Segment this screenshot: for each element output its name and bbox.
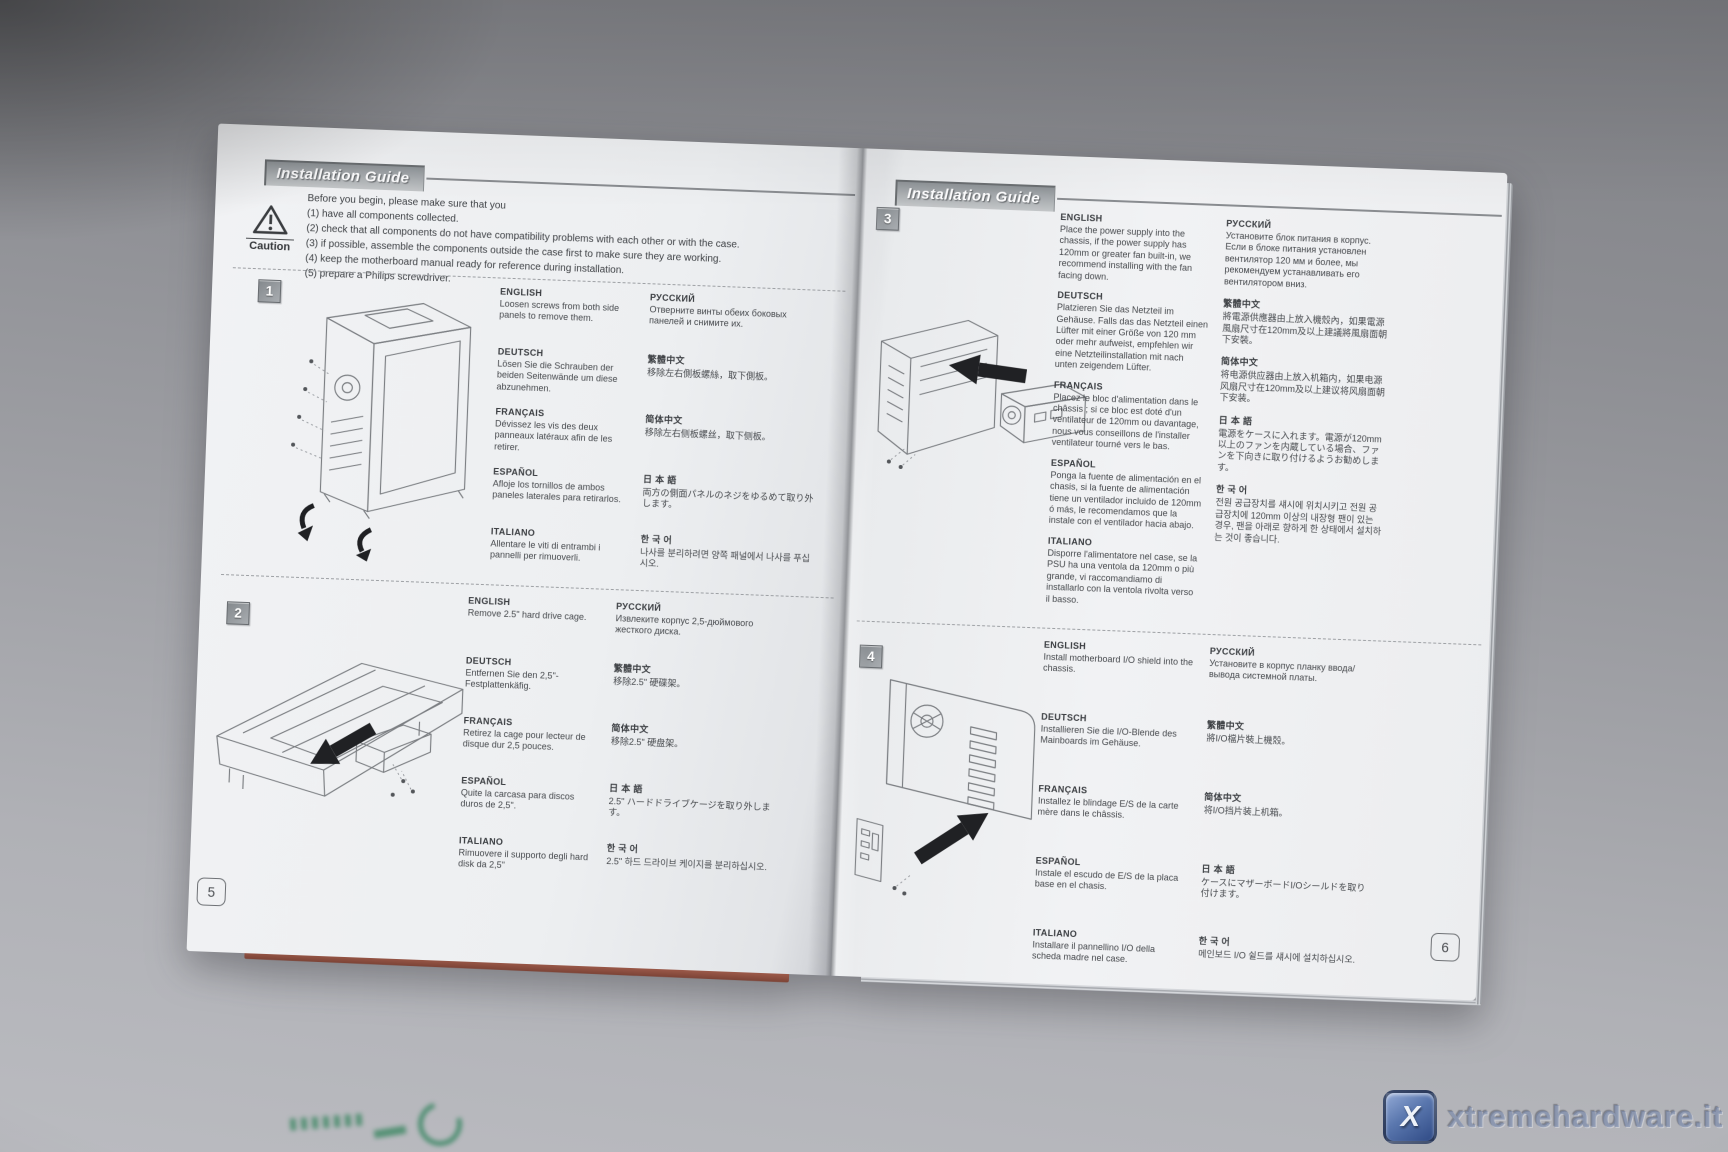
language-entry: РУССКИЙ Извлеките корпус 2,5-дюймового ж… (615, 601, 789, 655)
language-text: Afloje los tornillos de ambos paneles la… (492, 478, 631, 506)
step-3: 3 (859, 205, 1499, 643)
language-entry: DEUTSCH Platzieren Sie das Netzteil im G… (1055, 290, 1210, 376)
language-entry: ENGLISH Place the power supply into the … (1058, 212, 1213, 287)
language-entry: ESPAÑOL Instale el escudo de E/S de la p… (1034, 855, 1188, 919)
page-right: Installation Guide 3 (831, 148, 1507, 1000)
language-text: Loosen screws from both side panels to r… (499, 298, 638, 326)
language-text: 나사를 분리하려면 양쪽 패널에서 나사를 푸십시오. (640, 547, 813, 576)
step-3-languages-col1: ENGLISH Place the power supply into the … (1045, 212, 1212, 620)
step-1-languages-col1: ENGLISH Loosen screws from both side pan… (489, 286, 638, 591)
language-entry: FRANÇAIS Retirez la cage pour lecteur de… (462, 715, 602, 767)
language-text: Place the power supply into the chassis,… (1058, 224, 1212, 287)
language-text: Lösen Sie die Schrauben der beiden Seite… (496, 358, 635, 398)
language-entry: 繁體中文 移除左右側板螺絲，取下側板。 (646, 352, 820, 406)
language-text: 2.5" ハードドライブケージを取り外します。 (608, 796, 781, 825)
step-1-languages-col2: РУССКИЙ Отверните винты обеих боковых па… (639, 292, 822, 598)
header-rule (426, 178, 855, 196)
language-text: Установите в корпус планку ввода/вывода … (1209, 658, 1378, 687)
language-entry: РУССКИЙ Установите блок питания в корпус… (1224, 218, 1395, 294)
green-swirl-mark (410, 1094, 470, 1152)
step-3-badge: 3 (876, 207, 900, 231)
language-text: 将电源供应器由上放入机箱内，如果电源风扇尺寸在120mm及以上建议将风扇面朝下安… (1219, 370, 1388, 411)
language-text: Quite la carcasa para discos duros de 2,… (460, 787, 599, 815)
language-entry: 日 本 語 電源をケースに入れます。電源が120mm以上のファンを内蔵している場… (1217, 413, 1387, 480)
warning-triangle-icon (252, 203, 289, 236)
language-text: 將電源供應器由上放入機殼內，如果電源風扇尺寸在120mm及以上建議將風扇面朝下安… (1222, 311, 1391, 352)
page-title: Installation Guide (264, 159, 425, 191)
language-entry: FRANÇAIS Installez le blindage E/S de la… (1036, 784, 1190, 848)
language-text: Установите блок питания в корпус. Если в… (1224, 230, 1394, 294)
language-text: Retirez la cage pour lecteur de disque d… (462, 727, 601, 755)
language-entry: 简体中文 将电源供应器由上放入机箱内，如果电源风扇尺寸在120mm及以上建议将风… (1219, 355, 1389, 411)
step-1-case-drawing (266, 286, 508, 567)
language-text: Извлеките корпус 2,5-дюймового жесткого … (615, 613, 788, 642)
language-entry: 日 本 語 2.5" ハードドライブケージを取り外します。 (608, 781, 782, 835)
language-text: Entfernen Sie den 2,5"-Festplattenkäfig. (465, 667, 604, 695)
language-entry: ENGLISH Remove 2.5" hard drive cage. (467, 595, 607, 647)
language-text: Installare il pannellino I/O della sched… (1032, 939, 1185, 968)
language-entry: DEUTSCH Installieren Sie die I/O-Blende … (1039, 712, 1193, 776)
language-entry: 日 本 語 両方の側面パネルのネジをゆるめて取り外します。 (641, 472, 815, 526)
page-number-6: 6 (1430, 933, 1460, 962)
language-entry: ENGLISH Install motherboard I/O shield i… (1042, 640, 1196, 704)
language-text: Installez le blindage E/S de la carte mè… (1037, 796, 1190, 825)
language-entry: 日 本 語 ケースにマザーボードI/Oシールドを取り付けます。 (1200, 862, 1370, 926)
language-entry: 한 국 어 2.5" 하드 드라이브 케이지를 분리하십시오. (605, 841, 779, 895)
step-2-languages-col1: ENGLISH Remove 2.5" hard drive cage. DEU… (457, 595, 606, 900)
language-entry: РУССКИЙ Установите в корпус планку ввода… (1208, 646, 1378, 710)
step-1: 1 (231, 277, 847, 596)
step-4-languages-col2: РУССКИЙ Установите в корпус планку ввода… (1196, 646, 1378, 1012)
language-text: Allentare le viti di entrambi i pannelli… (490, 538, 629, 566)
language-text: Dévissez les vis des deux panneaux latér… (494, 418, 633, 458)
watermark: X xtremehardware.it (1383, 1090, 1723, 1144)
green-print-partial (282, 1096, 497, 1150)
language-text: Отверните винты обеих боковых панелей и … (649, 304, 822, 333)
step-4-languages-col1: ENGLISH Install motherboard I/O shield i… (1030, 640, 1196, 1006)
language-entry: ITALIANO Disporre l'alimentatore nel cas… (1046, 536, 1201, 611)
language-entry: ITALIANO Installare il pannellino I/O de… (1031, 927, 1185, 991)
step-4: 4 (845, 632, 1482, 992)
language-entry: FRANÇAIS Placez le bloc d'alimentation d… (1052, 379, 1207, 454)
language-entry: 繁體中文 將電源供應器由上放入機殼內，如果電源風扇尺寸在120mm及以上建議將風… (1222, 296, 1392, 352)
language-entry: ITALIANO Rimuovere il supporto degli har… (457, 835, 597, 887)
language-text: Placez le bloc d'alimentation dans le ch… (1052, 391, 1206, 454)
language-entry: 한 국 어 메인보드 I/O 쉴드를 섀시에 설치하십시오. (1197, 934, 1367, 998)
language-text: Rimuovere il supporto degli hard disk da… (458, 847, 597, 875)
green-text-smudge (290, 1113, 365, 1130)
step-2-case-drawing (204, 638, 470, 870)
language-entry: 繁體中文 移除2.5" 硬碟架。 (612, 661, 786, 715)
language-entry: 繁體中文 將I/O檔片裝上機殼。 (1205, 718, 1375, 782)
manual-booklet: Installation Guide Caution Before you be… (187, 124, 1508, 1001)
caution-label: Caution (243, 240, 295, 254)
language-entry: DEUTSCH Entfernen Sie den 2,5"-Festplatt… (464, 655, 604, 707)
page-left: Installation Guide Caution Before you be… (187, 124, 863, 976)
watermark-site-text: xtremehardware.it (1447, 1099, 1723, 1135)
language-entry: FRANÇAIS Dévissez les vis des deux panne… (494, 406, 634, 458)
language-text: Ponga la fuente de alimentación en el ch… (1049, 470, 1203, 533)
page-number-5: 5 (196, 877, 226, 906)
step-3-languages-col2: РУССКИЙ Установите блок питания в корпус… (1211, 218, 1394, 626)
language-entry: 한 국 어 전원 공급장치를 섀시에 위치시키고 전원 공급장치에 120mm … (1214, 482, 1384, 549)
language-entry: DEUTSCH Lösen Sie die Schrauben der beid… (496, 346, 636, 398)
language-text: 전원 공급장치를 섀시에 위치시키고 전원 공급장치에 120mm 이상의 내장… (1214, 497, 1384, 549)
step-2-languages-col2: РУССКИЙ Извлеките корпус 2,5-дюймового ж… (605, 601, 788, 907)
xtremehardware-logo-icon: X (1383, 1090, 1437, 1144)
language-text: 両方の側面パネルのネジをゆるめて取り外します。 (642, 487, 815, 516)
language-entry: ESPAÑOL Afloje los tornillos de ambos pa… (492, 466, 632, 518)
language-text: Disporre l'alimentatore nel case, se la … (1046, 548, 1200, 611)
language-text: Instale el escudo de E/S de la placa bas… (1035, 867, 1188, 896)
language-text: Install motherboard I/O shield into the … (1043, 652, 1196, 681)
language-entry: 한 국 어 나사를 분리하려면 양쪽 패널에서 나사를 푸십시오. (639, 532, 813, 586)
photo-scene: Installation Guide Caution Before you be… (0, 0, 1728, 1152)
language-text: 電源をケースに入れます。電源が120mm以上のファンを内蔵している場合、ファンを… (1217, 428, 1387, 480)
step-2: 2 (207, 586, 835, 959)
language-entry: РУССКИЙ Отверните винты обеих боковых па… (648, 292, 822, 346)
language-entry: ITALIANO Allentare le viti di entrambi i… (489, 526, 629, 578)
language-entry: 简体中文 移除2.5" 硬盘架。 (610, 721, 784, 775)
language-text: Installieren Sie die I/O-Blende des Main… (1040, 724, 1193, 753)
language-text: Platzieren Sie das Netzteil im Gehäuse. … (1055, 302, 1210, 376)
step-2-badge: 2 (226, 601, 250, 625)
step-4-io-shield-drawing (848, 660, 1063, 910)
language-entry: ESPAÑOL Ponga la fuente de alimentación … (1049, 458, 1204, 533)
language-entry: ESPAÑOL Quite la carcasa para discos dur… (460, 775, 600, 827)
language-entry: 简体中文 移除左右侧板螺丝，取下侧板。 (644, 412, 818, 466)
language-entry: 简体中文 将I/O挡片装上机箱。 (1202, 790, 1372, 854)
language-entry: ENGLISH Loosen screws from both side pan… (499, 286, 639, 338)
green-text-smudge (374, 1126, 407, 1139)
language-text: ケースにマザーボードI/Oシールドを取り付けます。 (1200, 877, 1369, 906)
